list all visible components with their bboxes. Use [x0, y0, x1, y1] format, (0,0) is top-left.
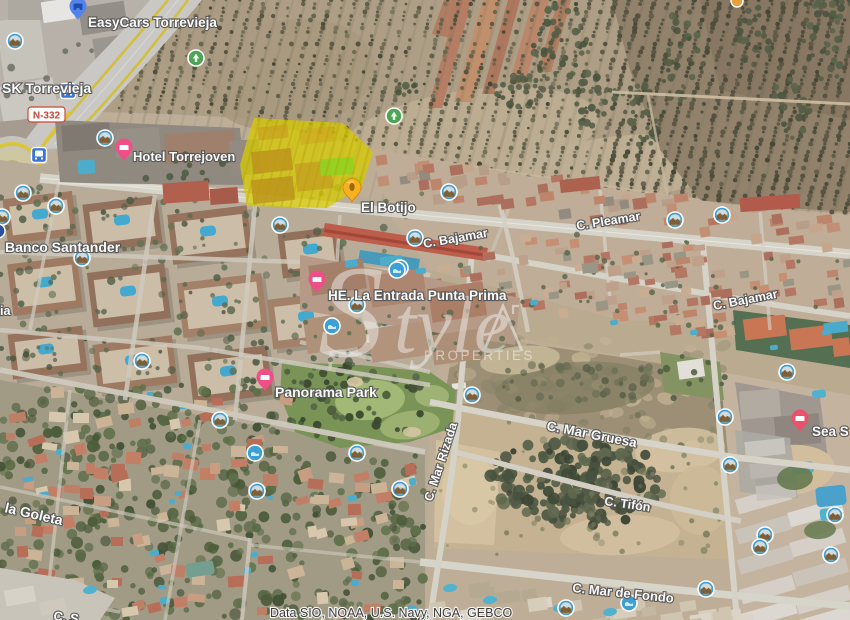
- svg-text:N-332: N-332: [33, 111, 61, 122]
- svg-text:PROPERTIES: PROPERTIES: [424, 348, 535, 363]
- svg-text:Banco Santander: Banco Santander: [5, 239, 121, 255]
- svg-text:El Botijo: El Botijo: [361, 200, 416, 215]
- svg-text:Sea S: Sea S: [812, 424, 849, 439]
- svg-text:EasyCars Torrevieja: EasyCars Torrevieja: [88, 15, 217, 30]
- svg-text:Hotel Torrejoven: Hotel Torrejoven: [133, 149, 235, 164]
- svg-text:Panorama Park: Panorama Park: [275, 384, 377, 400]
- svg-text:Data SIO, NOAA, U.S. Navy, NGA: Data SIO, NOAA, U.S. Navy, NGA, GEBCO: [270, 606, 512, 620]
- svg-text:ia: ia: [0, 304, 11, 318]
- svg-text:HE. La Entrada Punta Prima: HE. La Entrada Punta Prima: [328, 288, 507, 303]
- svg-text:S: S: [318, 238, 384, 385]
- svg-text:SK Torrevieja: SK Torrevieja: [2, 80, 91, 96]
